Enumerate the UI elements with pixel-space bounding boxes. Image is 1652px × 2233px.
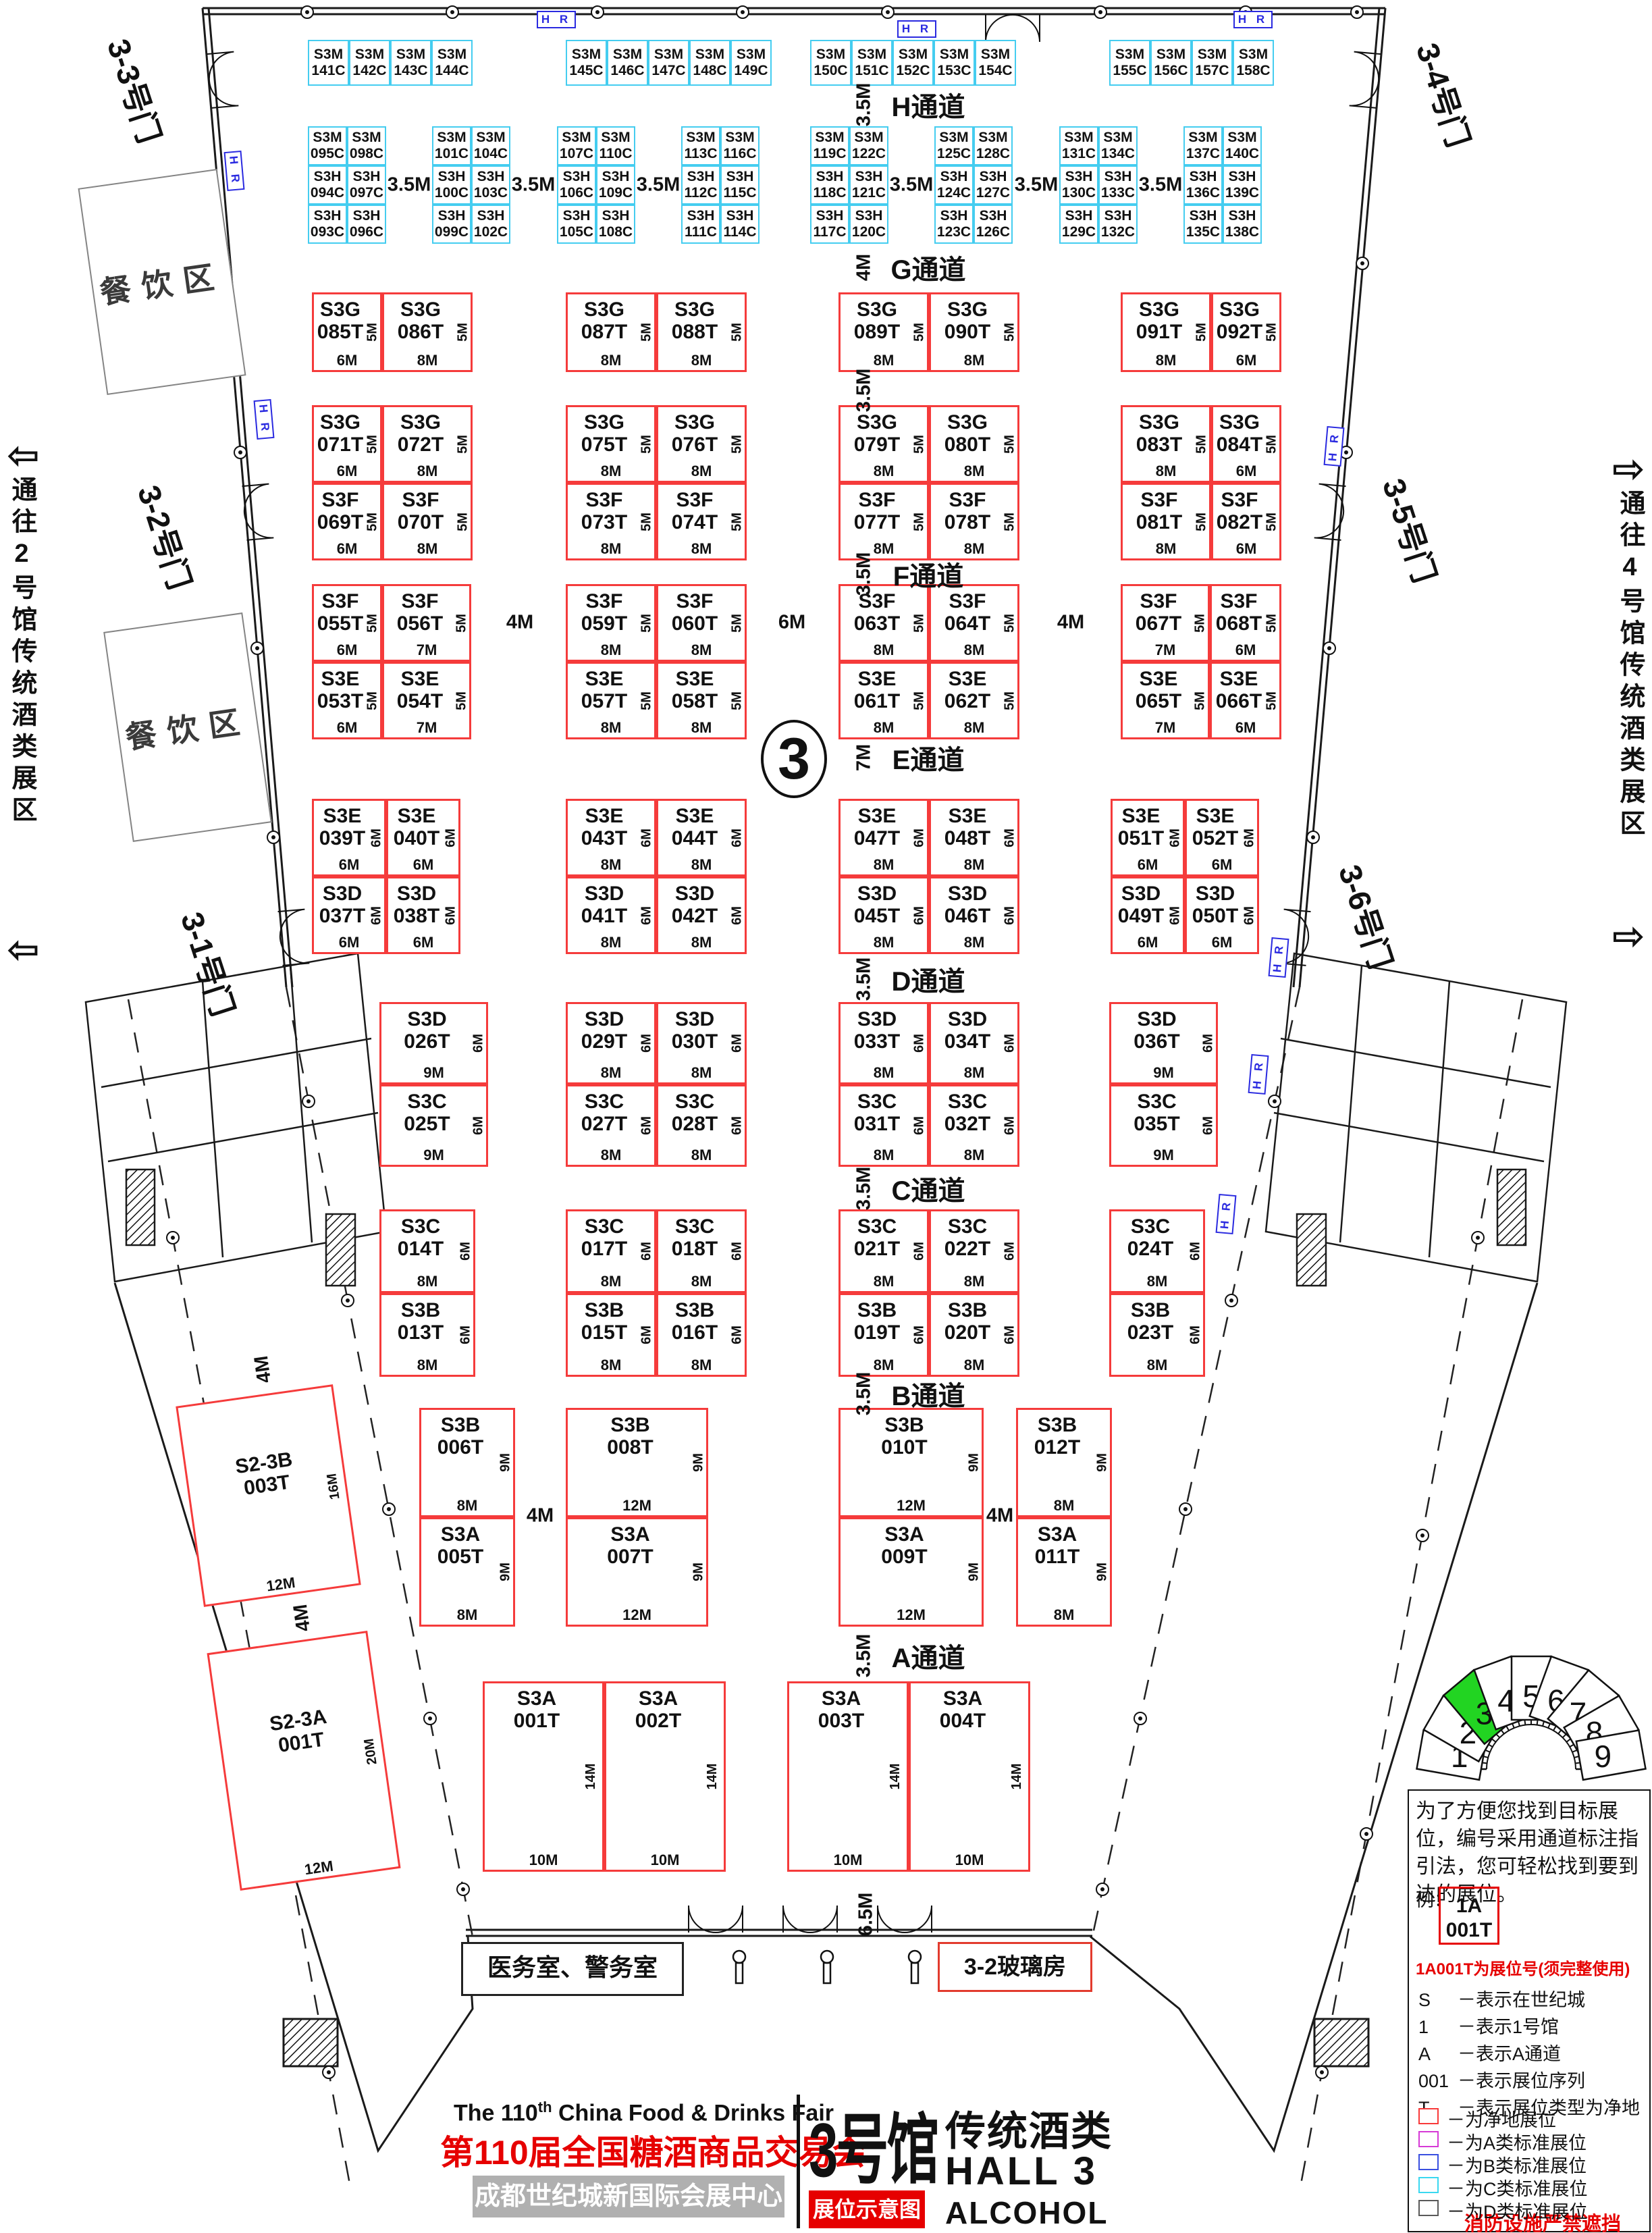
booth-S3H-102C: S3H102C bbox=[471, 205, 510, 244]
booth-zone: S3E bbox=[658, 805, 731, 827]
booth-zone: S3B bbox=[568, 1414, 693, 1436]
booth-label: S3F077T bbox=[841, 489, 913, 533]
booth-number: 080T bbox=[931, 434, 1004, 456]
booth-number: 005T bbox=[421, 1546, 500, 1568]
booth-width-label: 8M bbox=[658, 352, 745, 369]
aisle-width-C通道: 3.5M bbox=[853, 1167, 876, 1210]
booth-width-label: 8M bbox=[841, 1273, 927, 1290]
booth-number: 153C bbox=[935, 63, 974, 79]
booth-number: 074T bbox=[658, 511, 731, 533]
booth-label: S3F055T bbox=[314, 590, 367, 635]
booth-label: S3M148C bbox=[691, 47, 729, 79]
booth-label: S3H105C bbox=[558, 208, 595, 240]
booth-S3F-064T: S3F064T5M8M bbox=[929, 584, 1019, 662]
booth-S3C-032T: S3C032T6M8M bbox=[929, 1084, 1019, 1167]
booth-zone: S3H bbox=[811, 208, 848, 224]
booth-zone: S3G bbox=[314, 298, 367, 321]
booth-width-label: 6M bbox=[1212, 719, 1279, 737]
booth-S3F-060T: S3F060T5M8M bbox=[656, 584, 747, 662]
fair-title-chinese: 第110届全国糖酒商品交易会 bbox=[440, 2126, 818, 2174]
booth-number: 009T bbox=[841, 1546, 968, 1568]
booth-label: S3E065T bbox=[1123, 668, 1194, 712]
booth-depth-label: 9M bbox=[967, 1453, 982, 1472]
booth-width-label: 8M bbox=[384, 463, 471, 480]
booth-width-label: 8M bbox=[931, 1357, 1017, 1374]
booth-zone: S3H bbox=[348, 169, 385, 185]
booth-zone: S3G bbox=[931, 298, 1004, 321]
booth-S3C-035T: S3C035T6M9M bbox=[1109, 1084, 1218, 1167]
booth-number: 015T bbox=[568, 1321, 641, 1344]
booth-zone: S3M bbox=[1152, 47, 1190, 63]
booth-S3D-042T: S3D042T6M8M bbox=[656, 876, 747, 954]
booth-depth-label: 6M bbox=[369, 906, 385, 925]
booth-zone: S3H bbox=[348, 208, 385, 224]
booth-width-label: 6M bbox=[1213, 540, 1279, 558]
booth-zone: S3M bbox=[1234, 47, 1273, 63]
booth-S3M-148C: S3M148C bbox=[689, 40, 730, 86]
booth-zone: S3M bbox=[975, 130, 1011, 146]
booth-width-label: 6M bbox=[388, 934, 458, 951]
booth-depth-label: 6M bbox=[730, 1034, 745, 1053]
booth-number: 082T bbox=[1213, 511, 1266, 533]
booth-label: S3C028T bbox=[658, 1091, 731, 1135]
booth-S3D-029T: S3D029T6M8M bbox=[566, 1002, 656, 1084]
booth-zone: S3M bbox=[683, 130, 719, 146]
booth-width-label: 8M bbox=[931, 856, 1017, 874]
booth-S3G-080T: S3G080T5M8M bbox=[929, 405, 1019, 483]
booth-number: 115C bbox=[722, 185, 758, 201]
booth-depth-label: 5M bbox=[912, 691, 928, 710]
booth-zone: S3E bbox=[568, 805, 641, 827]
booth-S3H-096C: S3H096C bbox=[347, 205, 386, 244]
booth-zone: S3D bbox=[931, 883, 1004, 905]
booth-S3M-142C: S3M142C bbox=[349, 40, 390, 86]
booth-label: S2-3A001T bbox=[218, 1698, 381, 1764]
booth-number: 084T bbox=[1213, 434, 1266, 456]
booth-number: 026T bbox=[381, 1030, 473, 1053]
booth-S3E-057T: S3E057T5M8M bbox=[566, 662, 656, 739]
dimension-label: 3.5M bbox=[853, 369, 876, 412]
booth-width-label: 6M bbox=[314, 934, 384, 951]
booth-S3G-083T: S3G083T5M8M bbox=[1121, 405, 1211, 483]
booth-number: 102C bbox=[473, 224, 509, 240]
booth-S3F-055T: S3F055T5M6M bbox=[312, 584, 382, 662]
booth-depth-label: 5M bbox=[639, 323, 655, 342]
booth-zone: S3A bbox=[789, 1687, 893, 1710]
booth-width-label: 10M bbox=[485, 1851, 602, 1869]
booth-number: 035T bbox=[1111, 1113, 1202, 1135]
arrow-left-top: ⇦ bbox=[7, 432, 40, 478]
booth-S3H-133C: S3H133C bbox=[1098, 165, 1138, 205]
booth-S3M-150C: S3M150C bbox=[810, 40, 851, 86]
booth-label: S3H106C bbox=[558, 169, 595, 201]
booth-depth-label: 6M bbox=[1168, 829, 1183, 847]
booth-zone: S3E bbox=[931, 805, 1004, 827]
booth-zone: S3C bbox=[381, 1091, 473, 1113]
booth-S3B-015T: S3B015T6M8M bbox=[566, 1293, 656, 1377]
booth-number: 096C bbox=[348, 224, 385, 240]
booth-depth-label: 5M bbox=[912, 323, 928, 342]
booth-zone: S3H bbox=[558, 208, 595, 224]
booth-number: 093C bbox=[309, 224, 346, 240]
booth-label: S3F068T bbox=[1212, 590, 1266, 635]
booth-S3H-094C: S3H094C bbox=[308, 165, 347, 205]
booth-width-label: 8M bbox=[1123, 540, 1209, 558]
booth-label: S3B020T bbox=[931, 1299, 1004, 1344]
booth-zone: S3E bbox=[1212, 668, 1266, 690]
booth-label: S3G087T bbox=[568, 298, 641, 343]
booth-zone: S3G bbox=[841, 298, 913, 321]
booth-zone: S3C bbox=[931, 1215, 1004, 1238]
booth-zone: S3A bbox=[485, 1687, 589, 1710]
medical-police-room: 医务室、警务室 bbox=[461, 1942, 684, 1996]
booth-S3H-126C: S3H126C bbox=[974, 205, 1013, 244]
booth-zone: S3H bbox=[433, 208, 470, 224]
booth-zone: S3D bbox=[658, 883, 731, 905]
booth-zone: S3F bbox=[1123, 489, 1196, 511]
booth-zone: S3E bbox=[658, 668, 731, 690]
booth-S3B-023T: S3B023T6M8M bbox=[1109, 1293, 1205, 1377]
booth-label: S3E061T bbox=[841, 668, 913, 712]
booth-zone: S3D bbox=[1187, 883, 1244, 905]
booth-width-label: 8M bbox=[568, 352, 654, 369]
booth-width-label: 8M bbox=[658, 463, 745, 480]
booth-S3F-059T: S3F059T5M8M bbox=[566, 584, 656, 662]
booth-S3H-118C: S3H118C bbox=[810, 165, 849, 205]
booth-S3M-147C: S3M147C bbox=[648, 40, 689, 86]
booth-zone: S3B bbox=[841, 1299, 913, 1321]
booth-width-label: 8M bbox=[841, 719, 927, 737]
booth-zone: S3H bbox=[473, 169, 509, 185]
booth-width-label: 8M bbox=[1018, 1606, 1110, 1624]
booth-depth-label: 5M bbox=[730, 691, 745, 710]
booth-depth-label: 6M bbox=[730, 1116, 745, 1135]
booth-number: 072T bbox=[384, 434, 457, 456]
booth-number: 089T bbox=[841, 321, 913, 343]
booth-zone: S3A bbox=[606, 1687, 710, 1710]
booth-zone: S3E bbox=[841, 805, 913, 827]
booth-zone: S3H bbox=[1224, 208, 1260, 224]
booth-number: 119C bbox=[811, 146, 848, 162]
booth-S3M-145C: S3M145C bbox=[566, 40, 607, 86]
booth-number: 028T bbox=[658, 1113, 731, 1135]
booth-number: 151C bbox=[853, 63, 891, 79]
fire-hydrant-marker: H R bbox=[1233, 11, 1273, 28]
booth-width-label: 7M bbox=[384, 719, 469, 737]
booth-number: 152C bbox=[894, 63, 932, 79]
booth-depth-label: 14M bbox=[705, 1764, 720, 1790]
booth-zone: S3M bbox=[309, 130, 346, 146]
booth-label: S3B008T bbox=[568, 1414, 693, 1459]
booth-zone: S3C bbox=[658, 1091, 731, 1113]
hall-category-english: ALCOHOL bbox=[945, 2195, 1108, 2231]
booth-width-label: 8M bbox=[568, 1357, 654, 1374]
booth-S3E-062T: S3E062T5M8M bbox=[929, 662, 1019, 739]
booth-width-label: 6M bbox=[314, 352, 380, 369]
booth-label: S3M155C bbox=[1111, 47, 1149, 79]
booth-depth-label: 6M bbox=[639, 1116, 655, 1135]
booth-S3F-078T: S3F078T5M8M bbox=[929, 483, 1019, 560]
title-divider bbox=[797, 2095, 800, 2228]
booth-label: S3G085T bbox=[314, 298, 367, 343]
booth-zone: S3D bbox=[381, 1008, 473, 1030]
booth-S3C-018T: S3C018T6M8M bbox=[656, 1209, 747, 1293]
booth-number: 070T bbox=[384, 511, 457, 533]
booth-number: 099C bbox=[433, 224, 470, 240]
booth-number: 110C bbox=[597, 146, 634, 162]
booth-label: S3M140C bbox=[1224, 130, 1260, 162]
booth-number: 071T bbox=[314, 434, 367, 456]
booth-label: S3F081T bbox=[1123, 489, 1196, 533]
booth-label: S3H096C bbox=[348, 208, 385, 240]
booth-zone: S3M bbox=[691, 47, 729, 63]
booth-zone: S3C bbox=[841, 1091, 913, 1113]
booth-width-label: 8M bbox=[568, 540, 654, 558]
booth-number: 130C bbox=[1061, 185, 1097, 201]
legend-code-S: S－表示在世纪城 bbox=[1418, 1985, 1585, 2012]
booth-width-label: 6M bbox=[1187, 934, 1257, 951]
booth-S3H-106C: S3H106C bbox=[557, 165, 596, 205]
booth-depth-label: 6M bbox=[444, 829, 459, 847]
booth-label: S3M144C bbox=[433, 47, 471, 79]
booth-zone: S3F bbox=[841, 489, 913, 511]
booth-S3E-044T: S3E044T6M8M bbox=[656, 799, 747, 876]
booth-width-label: 6M bbox=[314, 641, 380, 659]
booth-width-label: 8M bbox=[568, 1273, 654, 1290]
booth-S3C-024T: S3C024T6M8M bbox=[1109, 1209, 1205, 1293]
fire-hydrant-marker: H R bbox=[1324, 426, 1345, 467]
booth-number: 004T bbox=[911, 1710, 1015, 1732]
booth-number: 145C bbox=[567, 63, 606, 79]
booth-depth-label: 5M bbox=[1264, 691, 1280, 710]
booth-width-label: 8M bbox=[658, 641, 745, 659]
booth-number: 136C bbox=[1185, 185, 1221, 201]
fire-hydrant-marker: H R bbox=[224, 151, 245, 191]
booth-width-label: 8M bbox=[384, 352, 471, 369]
booth-label: S3E051T bbox=[1113, 805, 1169, 849]
booth-number: 018T bbox=[658, 1238, 731, 1260]
booth-number: 112C bbox=[683, 185, 719, 201]
booth-S3H-103C: S3H103C bbox=[471, 165, 510, 205]
booth-label: S3H130C bbox=[1061, 169, 1097, 201]
venue-name: 成都世纪城新国际会展中心 bbox=[473, 2176, 784, 2217]
booth-zone: S3M bbox=[811, 130, 848, 146]
booth-depth-label: 5M bbox=[730, 323, 745, 342]
booth-number: 008T bbox=[568, 1436, 693, 1459]
booth-label: S3M104C bbox=[473, 130, 509, 162]
booth-number: 121C bbox=[851, 185, 887, 201]
booth-S3H-123C: S3H123C bbox=[934, 205, 974, 244]
dimension-label: 4M bbox=[290, 1603, 315, 1633]
booth-S3D-050T: S3D050T6M6M bbox=[1185, 876, 1259, 954]
booth-zone: S3C bbox=[381, 1215, 460, 1238]
booth-label: S3H115C bbox=[722, 169, 758, 201]
booth-number: 088T bbox=[658, 321, 731, 343]
booth-label: S3G090T bbox=[931, 298, 1004, 343]
fire-hydrant-marker: H R bbox=[1216, 1194, 1237, 1234]
booth-label: S3G092T bbox=[1213, 298, 1266, 343]
arrow-left-bottom: ⇦ bbox=[7, 926, 40, 972]
booth-number: 024T bbox=[1111, 1238, 1190, 1260]
legend-swatch bbox=[1418, 2177, 1439, 2193]
booth-depth-label: 5M bbox=[912, 513, 928, 531]
dimension-label: 3.5M bbox=[1139, 174, 1182, 196]
booth-S3H-112C: S3H112C bbox=[681, 165, 720, 205]
booth-zone: S3A bbox=[1018, 1523, 1096, 1546]
booth-width-label: 12M bbox=[841, 1606, 982, 1624]
booth-number: 045T bbox=[841, 905, 913, 927]
booth-S3A-009T: S3A009T9M12M bbox=[838, 1517, 984, 1627]
booth-depth-label: 5M bbox=[454, 691, 470, 710]
booth-label: S3M116C bbox=[722, 130, 758, 162]
booth-depth-label: 5M bbox=[365, 691, 381, 710]
booth-label: S3D036T bbox=[1111, 1008, 1202, 1053]
aisle-width-E通道: 7M bbox=[853, 744, 876, 771]
booth-width-label: 8M bbox=[841, 856, 927, 874]
booth-label: S3M150C bbox=[811, 47, 850, 79]
venue-overview-fan: 123456789 bbox=[1417, 1656, 1646, 1780]
dimension-label: 4M bbox=[506, 612, 533, 634]
booth-S3M-157C: S3M157C bbox=[1192, 40, 1233, 86]
booth-label: S3A003T bbox=[789, 1687, 893, 1732]
booth-width-label: 8M bbox=[381, 1357, 473, 1374]
booth-S3C-027T: S3C027T6M8M bbox=[566, 1084, 656, 1167]
booth-depth-label: 5M bbox=[365, 614, 381, 633]
booth-width-label: 8M bbox=[1123, 463, 1209, 480]
booth-label: S3G083T bbox=[1123, 411, 1196, 456]
booth-zone: S3A bbox=[568, 1523, 693, 1546]
booth-S3G-090T: S3G090T5M8M bbox=[929, 292, 1019, 372]
booth-S3A-011T: S3A011T9M8M bbox=[1016, 1517, 1112, 1627]
legend-swatch-label: －为D类标准展位 bbox=[1447, 2197, 1588, 2224]
aisle-label-G通道: G通道 bbox=[890, 248, 965, 287]
legend-swatch bbox=[1418, 2131, 1439, 2147]
aisle-label-A通道: A通道 bbox=[892, 1636, 965, 1675]
booth-S3G-075T: S3G075T5M8M bbox=[566, 405, 656, 483]
booth-width-label: 12M bbox=[568, 1606, 706, 1624]
hall-number-big: 3号馆 bbox=[809, 2089, 937, 2199]
booth-S3H-100C: S3H100C bbox=[432, 165, 471, 205]
booth-number: 083T bbox=[1123, 434, 1196, 456]
booth-number: 060T bbox=[658, 612, 731, 635]
booth-label: S3M122C bbox=[851, 130, 887, 162]
booth-number: 002T bbox=[606, 1710, 710, 1732]
booth-width-label: 7M bbox=[1123, 641, 1208, 659]
booth-number: 147C bbox=[649, 63, 688, 79]
booth-label: S3D026T bbox=[381, 1008, 473, 1053]
booth-width-label: 8M bbox=[384, 540, 471, 558]
booth-label: S3M128C bbox=[975, 130, 1011, 162]
booth-S3F-069T: S3F069T5M6M bbox=[312, 483, 382, 560]
booth-depth-label: 5M bbox=[1264, 435, 1280, 454]
booth-zone: S3F bbox=[568, 590, 641, 612]
booth-width-label: 8M bbox=[568, 934, 654, 951]
booth-zone: S3H bbox=[722, 208, 758, 224]
booth-width-label: 6M bbox=[1213, 352, 1279, 369]
booth-label: S3E053T bbox=[314, 668, 367, 712]
fire-hydrant-marker: H R bbox=[1269, 937, 1289, 978]
booth-zone: S3E bbox=[1187, 805, 1244, 827]
booth-depth-label: 5M bbox=[1194, 435, 1210, 454]
booth-width-label: 9M bbox=[381, 1064, 486, 1082]
booth-label: S3C021T bbox=[841, 1215, 913, 1260]
aisle-label-H通道: H通道 bbox=[892, 85, 965, 124]
plan-type-tag: 展位示意图 bbox=[809, 2190, 925, 2228]
booth-S3M-113C: S3M113C bbox=[681, 126, 720, 165]
booth-width-label: 6M bbox=[1113, 856, 1183, 874]
booth-zone: S3D bbox=[314, 883, 371, 905]
booth-S3M-149C: S3M149C bbox=[730, 40, 772, 86]
booth-label: S3H109C bbox=[597, 169, 634, 201]
booth-S3A-002T: S3A002T14M10M bbox=[604, 1681, 726, 1872]
booth-S3A-001T: S3A001T14M10M bbox=[483, 1681, 604, 1872]
booth-label: S3F070T bbox=[384, 489, 457, 533]
booth-S3H-105C: S3H105C bbox=[557, 205, 596, 244]
booth-S3B-013T: S3B013T6M8M bbox=[379, 1293, 475, 1377]
dimension-label: 4M bbox=[250, 1355, 276, 1384]
booth-zone: S3C bbox=[931, 1091, 1004, 1113]
booth-label: S3A002T bbox=[606, 1687, 710, 1732]
booth-S3B-019T: S3B019T6M8M bbox=[838, 1293, 929, 1377]
booth-depth-label: 5M bbox=[1003, 513, 1018, 531]
booth-number: 118C bbox=[811, 185, 848, 201]
booth-width-label: 6M bbox=[1187, 856, 1257, 874]
booth-zone: S3M bbox=[851, 130, 887, 146]
booth-label: S3B019T bbox=[841, 1299, 913, 1344]
booth-S3F-081T: S3F081T5M8M bbox=[1121, 483, 1211, 560]
booth-S3B-016T: S3B016T6M8M bbox=[656, 1293, 747, 1377]
booth-depth-label: 6M bbox=[458, 1242, 474, 1261]
booth-label: S3G079T bbox=[841, 411, 913, 456]
booth-depth-label: 6M bbox=[471, 1034, 487, 1053]
dimension-label: 6M bbox=[778, 612, 805, 634]
legend-code-001: 001－表示展位序列 bbox=[1418, 2066, 1585, 2093]
booth-label: S3H129C bbox=[1061, 208, 1097, 240]
booth-zone: S3C bbox=[1111, 1091, 1202, 1113]
booth-depth-label: 6M bbox=[912, 1242, 928, 1261]
booth-number: 113C bbox=[683, 146, 719, 162]
booth-zone: S3G bbox=[568, 411, 641, 434]
fan-hall-number: 9 bbox=[1595, 1739, 1612, 1774]
booth-number: 025T bbox=[381, 1113, 473, 1135]
booth-label: S3H117C bbox=[811, 208, 848, 240]
booth-S3F-070T: S3F070T5M8M bbox=[382, 483, 473, 560]
booth-depth-label: 5M bbox=[456, 513, 471, 531]
booth-label: S3M153C bbox=[935, 47, 974, 79]
booth-label: S3H118C bbox=[811, 169, 848, 201]
booth-number: 021T bbox=[841, 1238, 913, 1260]
booth-label: S3M149C bbox=[732, 47, 770, 79]
booth-zone: S3H bbox=[811, 169, 848, 185]
booth-label: S3C022T bbox=[931, 1215, 1004, 1260]
booth-label: S3D037T bbox=[314, 883, 371, 927]
booth-S3M-152C: S3M152C bbox=[892, 40, 934, 86]
booth-label: S3M147C bbox=[649, 47, 688, 79]
booth-label: S3M119C bbox=[811, 130, 848, 162]
booth-zone: S3M bbox=[567, 47, 606, 63]
booth-S3F-077T: S3F077T5M8M bbox=[838, 483, 929, 560]
booth-label: S3F060T bbox=[658, 590, 731, 635]
booth-zone: S3H bbox=[1185, 169, 1221, 185]
booth-label: S3F056T bbox=[384, 590, 456, 635]
booth-zone: S3M bbox=[1224, 130, 1260, 146]
booth-number: 053T bbox=[314, 690, 367, 712]
booth-number: 097C bbox=[348, 185, 385, 201]
booth-S3E-048T: S3E048T6M8M bbox=[929, 799, 1019, 876]
booth-S3F-063T: S3F063T5M8M bbox=[838, 584, 929, 662]
booth-label: S3G088T bbox=[658, 298, 731, 343]
booth-label: S3E043T bbox=[568, 805, 641, 849]
